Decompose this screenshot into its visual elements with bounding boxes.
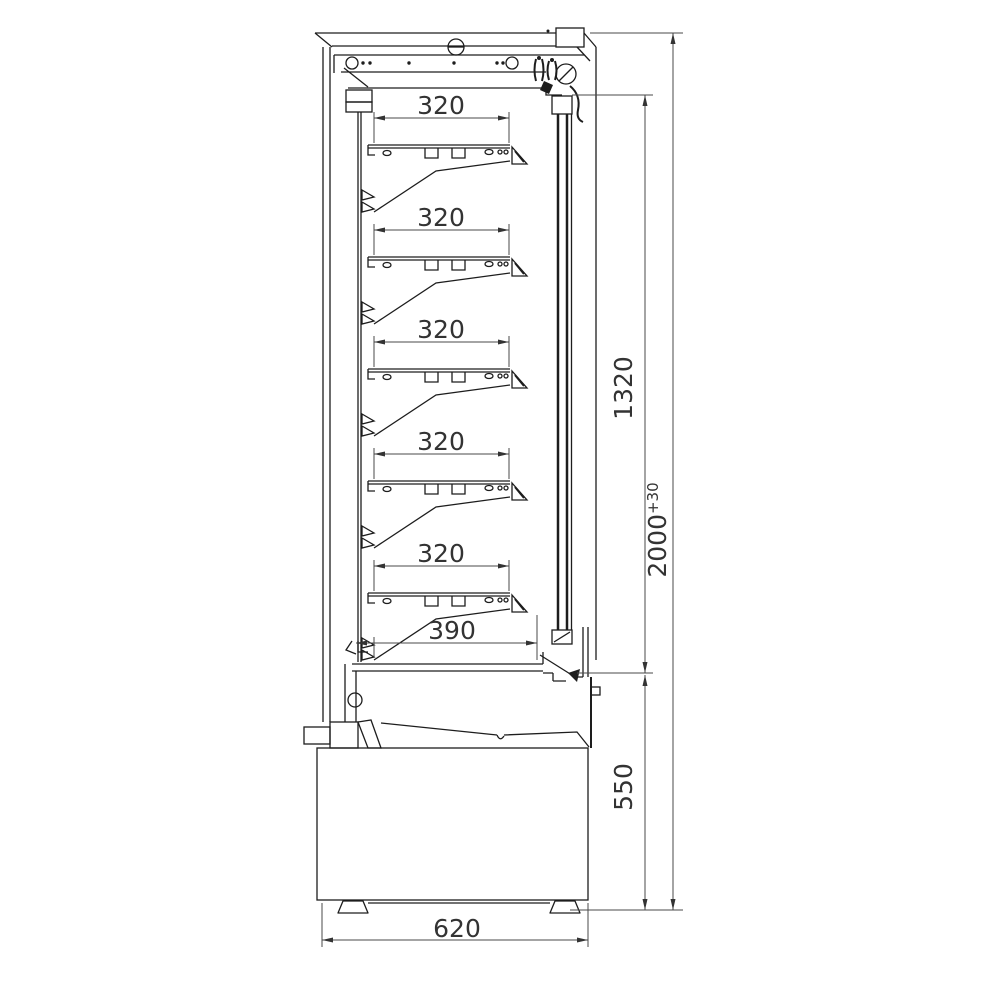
screw-hole-right bbox=[506, 57, 518, 69]
shelf-dim-label-5: 320 bbox=[417, 539, 465, 568]
shelf-dim-label-1: 320 bbox=[417, 91, 465, 120]
cabinet-side-view-drawing: 320 320 320 320 320 390 1320 2000+30 550… bbox=[0, 0, 1000, 1000]
door-hinge-hardware bbox=[535, 47, 591, 122]
depth-label: 620 bbox=[433, 914, 481, 943]
base-height-label: 550 bbox=[609, 763, 638, 811]
foot-right bbox=[550, 901, 580, 913]
shelf-dim-label-3: 320 bbox=[417, 315, 465, 344]
dim-550 bbox=[643, 675, 648, 910]
shelf-1 bbox=[362, 112, 527, 212]
interior-height-label: 1320 bbox=[609, 356, 638, 420]
machine-compartment bbox=[304, 641, 589, 748]
shelf-5 bbox=[362, 560, 527, 660]
foot-left bbox=[338, 901, 368, 913]
shelf-dim-label-2: 320 bbox=[417, 203, 465, 232]
screw-head-icon bbox=[448, 39, 464, 55]
plinth-base bbox=[317, 748, 588, 913]
shelf-2 bbox=[362, 224, 527, 324]
shelf-dim-label-4: 320 bbox=[417, 427, 465, 456]
shelf-4 bbox=[362, 448, 527, 548]
bottom-deck bbox=[352, 627, 600, 748]
bottom-shelf-dim-label: 390 bbox=[428, 616, 476, 645]
cable-hole bbox=[348, 693, 362, 707]
bumper bbox=[304, 727, 330, 744]
shelf-3 bbox=[362, 336, 527, 436]
left-wall bbox=[323, 47, 330, 722]
total-height-label: 2000+30 bbox=[643, 482, 672, 577]
drain-tab bbox=[591, 687, 600, 695]
glass-door bbox=[552, 96, 572, 644]
screw-hole-left bbox=[346, 57, 358, 69]
back-panel bbox=[358, 112, 361, 662]
